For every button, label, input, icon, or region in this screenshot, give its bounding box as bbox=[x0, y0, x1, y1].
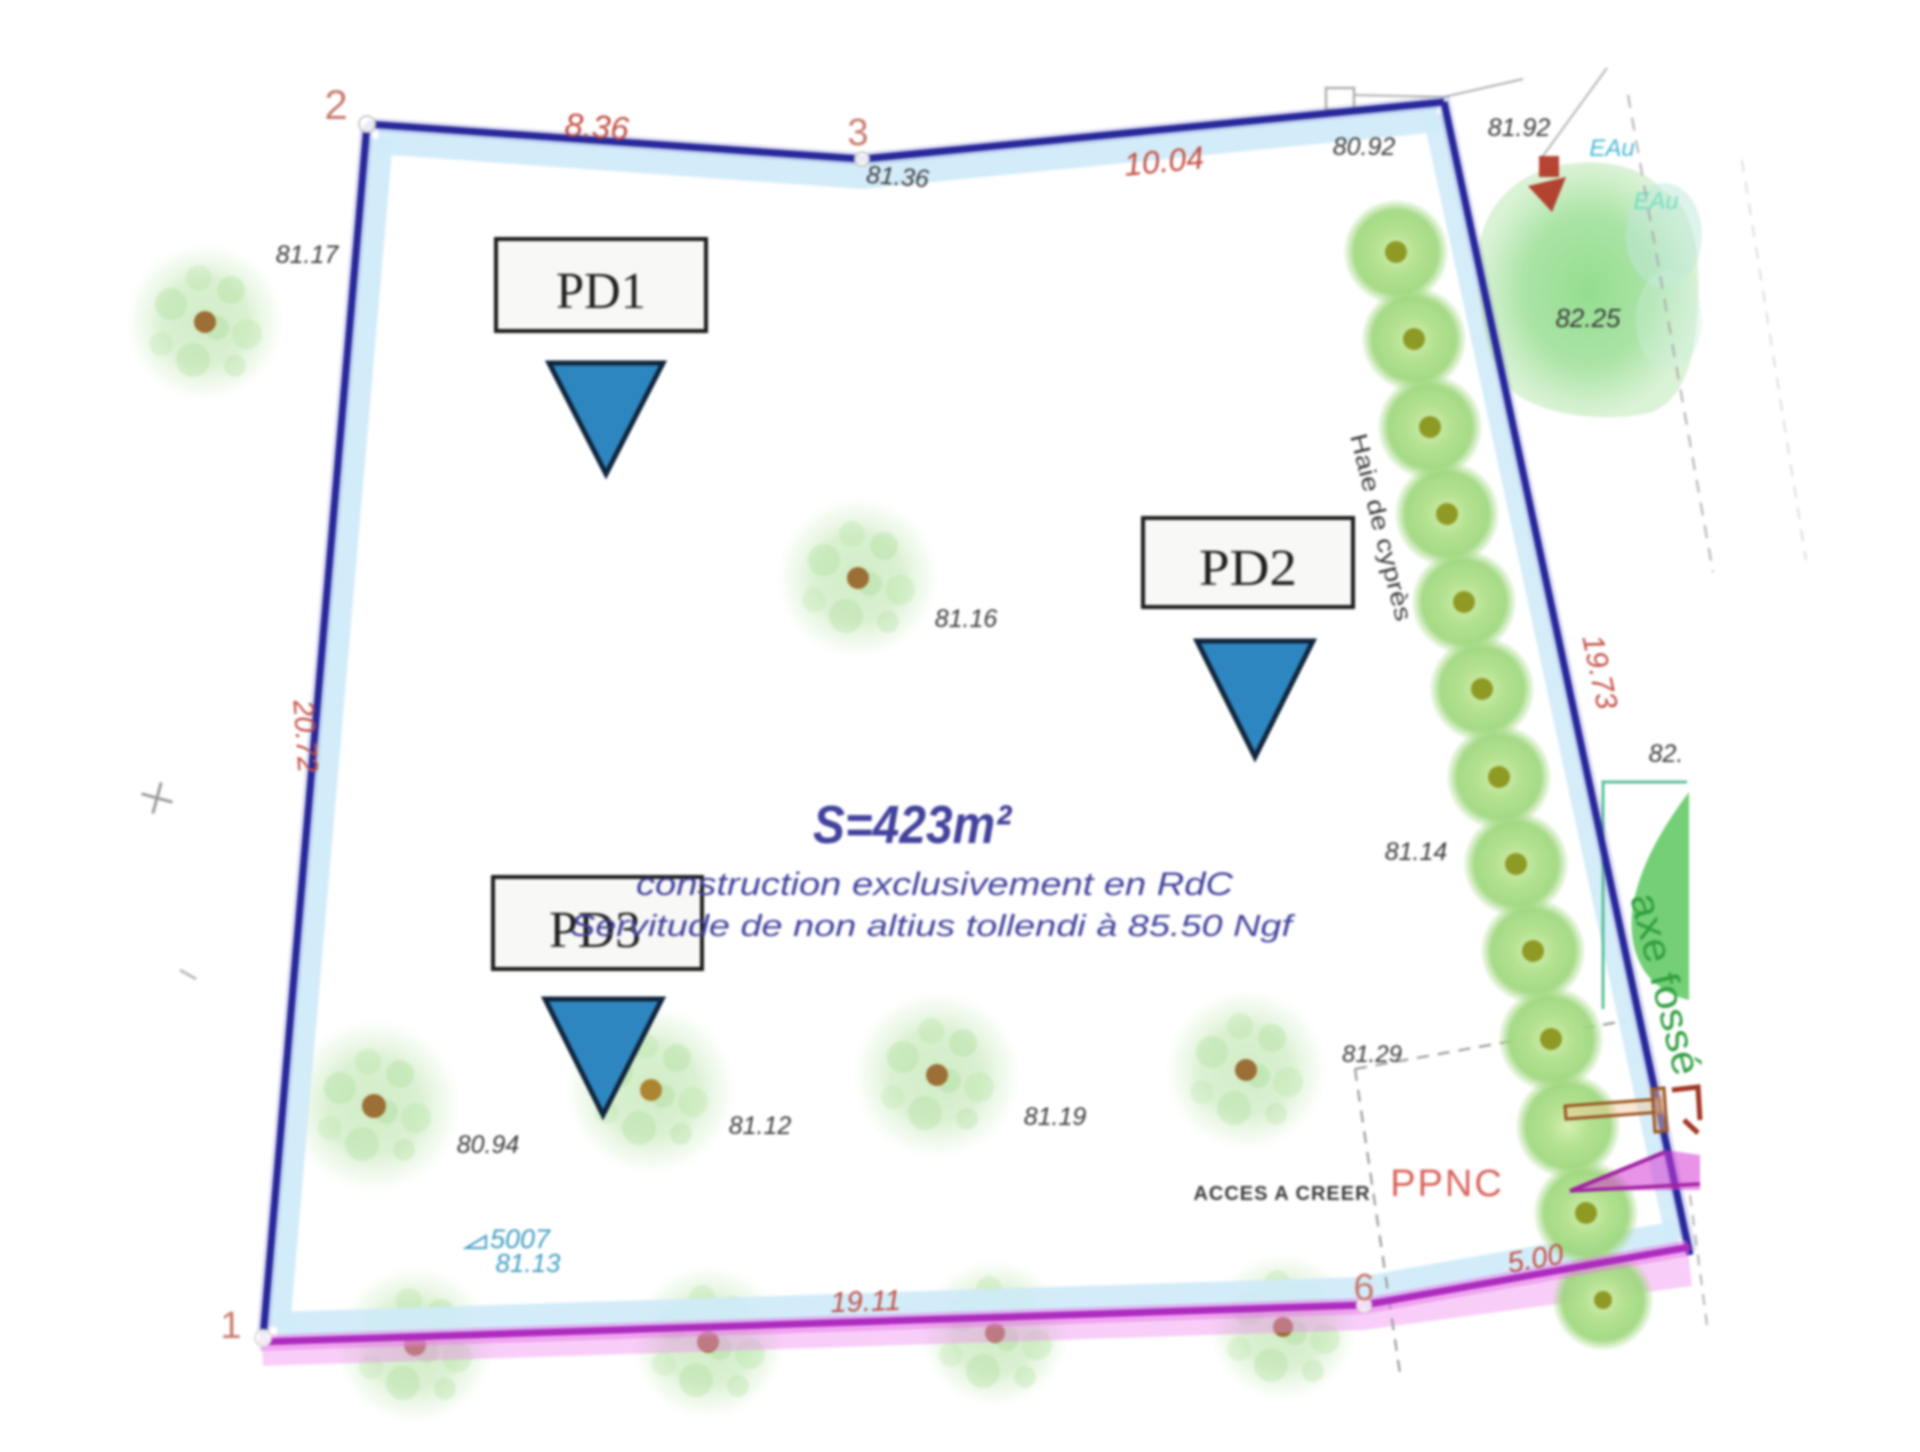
svg-text:81.14: 81.14 bbox=[1385, 838, 1448, 866]
svg-text:EAu: EAu bbox=[1589, 135, 1634, 162]
svg-text:81.16: 81.16 bbox=[935, 605, 998, 633]
svg-text:PPNC: PPNC bbox=[1390, 1163, 1504, 1205]
svg-text:PD2: PD2 bbox=[1199, 540, 1297, 597]
svg-text:82.: 82. bbox=[1649, 740, 1684, 768]
svg-text:ACCES A CREER: ACCES A CREER bbox=[1193, 1183, 1370, 1205]
svg-text:80.92: 80.92 bbox=[1333, 133, 1396, 161]
svg-text:EAu: EAu bbox=[1633, 188, 1678, 215]
svg-text:80.94: 80.94 bbox=[457, 1131, 520, 1159]
svg-text:1: 1 bbox=[220, 1305, 241, 1347]
svg-text:81.29: 81.29 bbox=[1342, 1041, 1402, 1068]
svg-text:81.19: 81.19 bbox=[1024, 1103, 1087, 1131]
svg-text:19.11: 19.11 bbox=[830, 1285, 901, 1319]
svg-text:20.72: 20.72 bbox=[286, 698, 323, 774]
svg-text:S=423m²: S=423m² bbox=[813, 795, 1013, 855]
svg-text:construction exclusivement en: construction exclusivement en RdC bbox=[636, 866, 1234, 902]
svg-text:81.36: 81.36 bbox=[865, 161, 929, 193]
svg-text:81.12: 81.12 bbox=[729, 1112, 792, 1140]
svg-text:81.17: 81.17 bbox=[276, 241, 340, 269]
svg-text:Servitude de non altius tollen: Servitude de non altius tollendi à 85.50… bbox=[570, 908, 1296, 943]
svg-text:6: 6 bbox=[1353, 1267, 1374, 1309]
svg-text:81.13: 81.13 bbox=[495, 1248, 561, 1278]
svg-text:3: 3 bbox=[847, 112, 868, 154]
svg-text:81.92: 81.92 bbox=[1488, 114, 1551, 142]
svg-text:8.36: 8.36 bbox=[563, 106, 630, 147]
svg-text:PD1: PD1 bbox=[556, 263, 646, 320]
svg-text:2: 2 bbox=[324, 81, 347, 128]
svg-text:10.04: 10.04 bbox=[1122, 139, 1205, 183]
svg-text:82.25: 82.25 bbox=[1555, 303, 1621, 333]
